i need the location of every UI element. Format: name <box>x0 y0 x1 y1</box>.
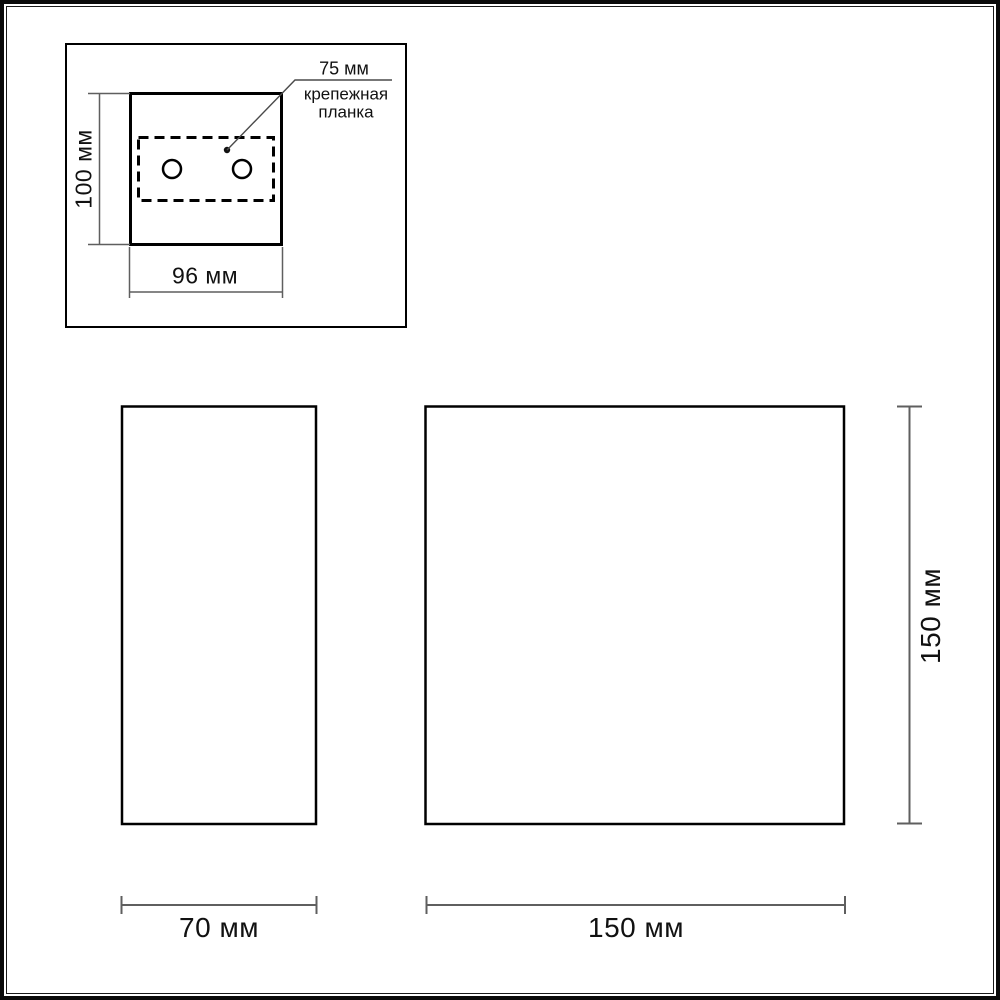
mounting-plate-name-line1: крепежная <box>304 86 388 104</box>
inset-width-dim-label: 96 мм <box>172 263 238 290</box>
inset-height-dim-label: 100 мм <box>71 129 98 208</box>
mounting-plate-name-label: крепежная планка <box>304 86 388 123</box>
mounting-plate-dimension-label: 75 мм <box>319 59 369 80</box>
dimension-drawing-page: 75 мм крепежная планка 100 мм 96 мм 70 м… <box>0 0 1000 1000</box>
front-height-dim-label: 150 мм <box>915 568 947 664</box>
fixture-back-outline <box>131 94 282 245</box>
side-width-dim-label: 70 мм <box>179 912 259 944</box>
drawing-canvas <box>0 0 1000 1000</box>
side-view-outline <box>122 407 316 825</box>
mounting-hole-right <box>233 160 251 178</box>
mounting-plate-name-line2: планка <box>304 104 388 122</box>
mounting-hole-left <box>163 160 181 178</box>
front-width-dim-label: 150 мм <box>588 912 684 944</box>
front-view-outline <box>426 407 845 825</box>
